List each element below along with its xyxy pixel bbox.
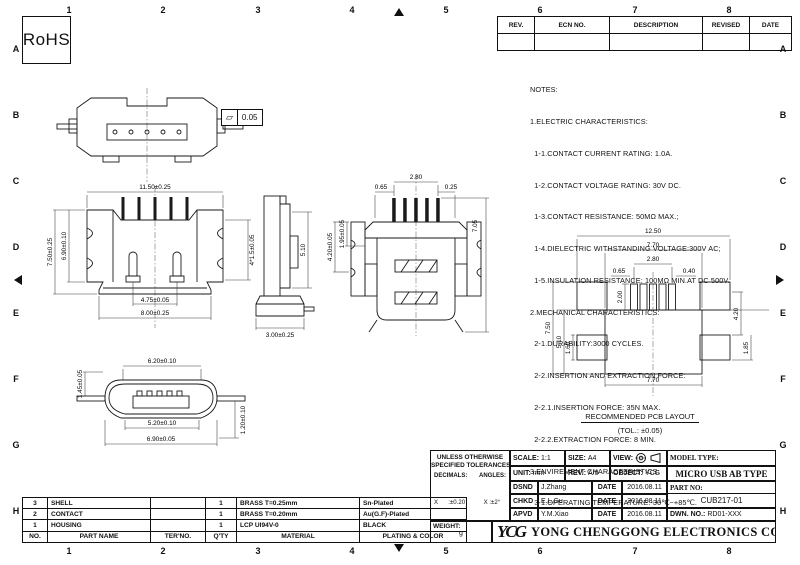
- part-name: SHELL: [48, 498, 151, 509]
- size-value: A4: [588, 455, 597, 462]
- dim-label: 1.45±0.05: [77, 369, 84, 398]
- weight-value: g: [433, 530, 489, 537]
- scale-label: SCALE:: [513, 455, 539, 462]
- apvd-name: Y.M.Xiao: [538, 508, 592, 521]
- svg-text:H: H: [780, 506, 787, 516]
- rear-view-geometry: [351, 174, 481, 336]
- svg-text:F: F: [780, 374, 786, 384]
- scale-value: 1:1: [541, 455, 551, 462]
- svg-text:6: 6: [537, 546, 542, 556]
- ecn-col-header: ECN NO.: [535, 17, 610, 34]
- svg-text:A: A: [13, 44, 20, 54]
- angle-tolerances: X :±2° X.X :±1°: [484, 480, 506, 521]
- revision-empty-row: [498, 34, 792, 51]
- part-no-value-cell: CUB217-01: [667, 494, 776, 508]
- parts-row-contact: 2 CONTACT 1 BRASS T=0.20mm Au(G.F)-Plate…: [23, 509, 467, 520]
- front-view: 11.50±0.25 7.50±0.25 6.90±0.10 4*1.5±0.0…: [45, 182, 260, 332]
- part-qty: 1: [206, 498, 237, 509]
- part-ter-no: [151, 498, 206, 509]
- dim-label: 4.20: [733, 307, 740, 320]
- parts-row-housing: 1 HOUSING 1 LCP UI94V-0 BLACK: [23, 520, 467, 531]
- front-view-dimensions: 11.50±0.25 7.50±0.25 6.90±0.10 4*1.5±0.0…: [47, 184, 256, 320]
- part-ter-no: [151, 520, 206, 531]
- front-view-geometry: [87, 186, 223, 328]
- rev-label: REV.:: [568, 470, 586, 477]
- svg-text:C: C: [780, 176, 787, 186]
- dsnd-date: 2016.08.11: [622, 481, 667, 494]
- dim-label: 2.80: [647, 256, 660, 263]
- pcb-dimensions: 12.50 7.70 2.80 0.65 0.40 2.00 7.50 5.10…: [545, 228, 753, 387]
- model-type-value-cell: MICRO USB AB TYPE: [667, 466, 776, 481]
- top-view: [55, 86, 245, 184]
- part-name: CONTACT: [48, 509, 151, 520]
- rear-view: 2.80 0.65 0.25 4.20±0.05 1.95±0.05 7.05: [325, 168, 493, 340]
- dim-label: 1.60: [565, 341, 572, 354]
- svg-text:1: 1: [66, 5, 71, 15]
- company-logo: YCG: [497, 522, 525, 542]
- part-no-value: CUB217-01: [701, 496, 743, 505]
- svg-text:2: 2: [160, 5, 165, 15]
- dim-label: 2.80: [410, 174, 423, 181]
- unit-value: mm: [533, 470, 545, 477]
- chkd-name: E.L.Gu: [538, 494, 592, 508]
- flatness-callout: ▱ 0.05: [221, 109, 263, 126]
- parts-header-ter-no: TER'NO.: [151, 531, 206, 542]
- title-block: UNLESS OTHERWISE SPECIFIED TOLERANCES DE…: [430, 450, 776, 543]
- svg-text:8: 8: [726, 546, 731, 556]
- svg-text:7: 7: [632, 5, 637, 15]
- svg-text:6: 6: [537, 5, 542, 15]
- dim-label: 1.95±0.05: [339, 219, 346, 248]
- dim-label: 11.50±0.25: [139, 184, 171, 191]
- svg-text:C: C: [13, 176, 20, 186]
- svg-text:E: E: [780, 308, 786, 318]
- chkd-date-label: DATE: [592, 494, 622, 508]
- bottom-view-geometry: [77, 380, 245, 418]
- dim-label: 2.00: [617, 290, 624, 303]
- size-cell: SIZE: A4: [565, 450, 610, 466]
- scale-cell: SCALE: 1:1: [510, 450, 565, 466]
- rev-cell: REV.: A/0: [565, 466, 610, 481]
- part-no: 1: [23, 520, 48, 531]
- svg-text:D: D: [13, 242, 20, 252]
- dim-label: 6.90±0.05: [147, 436, 176, 443]
- dwn-no-value: RD01-XXX: [707, 511, 741, 518]
- object-label: OBJECT:: [613, 470, 643, 477]
- part-material: BRASS T=0.25mm: [237, 498, 360, 509]
- svg-text:4: 4: [349, 546, 354, 556]
- unit-label: UNIT:: [513, 470, 531, 477]
- svg-text:D: D: [780, 242, 787, 252]
- parts-table: 3 SHELL 1 BRASS T=0.25mm Sn-Plated 2 CON…: [22, 497, 467, 543]
- svg-text:E: E: [13, 308, 19, 318]
- tolerance-box: UNLESS OTHERWISE SPECIFIED TOLERANCES DE…: [430, 450, 510, 521]
- parts-header-no: NO.: [23, 531, 48, 542]
- svg-text:8: 8: [726, 5, 731, 15]
- part-name: HOUSING: [48, 520, 151, 531]
- date-col-header: DATE: [750, 17, 792, 34]
- svg-text:4: 4: [349, 5, 354, 15]
- dim-label: 4.20±0.05: [327, 232, 334, 261]
- svg-text:H: H: [13, 506, 20, 516]
- dim-label: 7.50: [545, 321, 552, 334]
- object-value: YCG: [645, 470, 660, 477]
- notes-line: 1-2.CONTACT VOLTAGE RATING: 30V DC.: [530, 181, 778, 192]
- dim-label: 0.65: [375, 184, 388, 191]
- company-cell: YCG YONG CHENGGONG ELECTRONICS CO. , LTD…: [492, 521, 776, 543]
- svg-text:B: B: [13, 110, 20, 120]
- dsnd-role: DSND: [510, 481, 538, 494]
- apvd-date: 2016.08.11: [622, 508, 667, 521]
- notes-line: 2-2.2.EXTRACTION FORCE: 8 MIN.: [530, 435, 778, 446]
- weight-cell: WEIGHT: g: [430, 521, 492, 543]
- rev-col-header: REV.: [498, 17, 535, 34]
- part-qty: 1: [206, 509, 237, 520]
- pcb-layout-view: 12.50 7.70 2.80 0.65 0.40 2.00 7.50 5.10…: [545, 226, 777, 412]
- drawing-sheet: 1 2 3 4 5 6 7 8 1 2 3 4 5 6 7 8 A B C D …: [0, 0, 800, 565]
- revision-header-row: REV. ECN NO. DESCRIPTION REVISED DATE: [498, 17, 792, 34]
- notes-line: NOTES:: [530, 85, 778, 96]
- part-no-label: PART NO:: [670, 484, 703, 492]
- rev-value: A/0: [588, 470, 599, 477]
- bottom-view: 6.20±0.10 1.45±0.05 5.20±0.10 6.90±0.05 …: [73, 350, 249, 468]
- part-no: 3: [23, 498, 48, 509]
- model-type-value: MICRO USB AB TYPE: [675, 469, 767, 479]
- svg-text:5: 5: [443, 546, 448, 556]
- size-label: SIZE:: [568, 455, 586, 462]
- unit-cell: UNIT: mm: [510, 466, 565, 481]
- model-type-label: MODEL TYPE:: [670, 454, 719, 462]
- tolerance-title-line1: UNLESS OTHERWISE: [431, 454, 509, 462]
- dwn-no-label: DWN. NO.:: [670, 511, 705, 518]
- decimal-tolerances: X :±0.20 X.X :±0.15 X.XX :±0.10 X.XXX :±…: [434, 480, 484, 521]
- dim-label: 5.20±0.10: [148, 420, 177, 427]
- tolerance-title-line2: SPECIFIED TOLERANCES: [431, 462, 509, 470]
- revised-col-header: REVISED: [703, 17, 750, 34]
- pcb-caption: RECOMMENDED PCB LAYOUT (TOL.: ±0.05): [545, 412, 735, 435]
- dim-label: 7.70: [647, 377, 660, 384]
- svg-text:G: G: [12, 440, 19, 450]
- description-col-header: DESCRIPTION: [610, 17, 703, 34]
- dim-label: 8.00±0.25: [141, 310, 170, 317]
- bottom-view-dimensions: 6.20±0.10 1.45±0.05 5.20±0.10 6.90±0.05 …: [77, 358, 247, 446]
- dim-label: 7.50±0.25: [47, 237, 54, 266]
- parts-row-shell: 3 SHELL 1 BRASS T=0.25mm Sn-Plated: [23, 498, 467, 509]
- svg-text:B: B: [780, 110, 787, 120]
- part-no-label-cell: PART NO:: [667, 481, 776, 494]
- pcb-caption-title: RECOMMENDED PCB LAYOUT: [581, 412, 698, 423]
- svg-text:F: F: [13, 374, 19, 384]
- rohs-badge: RoHS: [22, 16, 71, 64]
- notes-line: 1-1.CONTACT CURRENT RATING: 1.0A.: [530, 149, 778, 160]
- part-no: 2: [23, 509, 48, 520]
- dsnd-date-label: DATE: [592, 481, 622, 494]
- model-type-label-cell: MODEL TYPE:: [667, 450, 776, 466]
- svg-text:1: 1: [66, 546, 71, 556]
- dim-label: 7.70: [647, 242, 660, 249]
- dwn-no-cell: DWN. NO.: RD01-XXX: [667, 508, 776, 521]
- dim-label: 0.65: [613, 268, 626, 275]
- dim-label: 3.00±0.25: [266, 332, 295, 339]
- svg-text:7: 7: [632, 546, 637, 556]
- dim-label: 5.10: [556, 335, 563, 348]
- svg-text:2: 2: [160, 546, 165, 556]
- angles-label: ANGLES:: [479, 473, 506, 479]
- top-view-geometry: [57, 88, 243, 182]
- apvd-role: APVD: [510, 508, 538, 521]
- parts-header-row: NO. PART NAME TER'NO. Q'TY MATERIAL PLAT…: [23, 531, 467, 542]
- view-label: VIEW:: [613, 455, 633, 462]
- side-view: 5.10 3.00±0.25: [250, 188, 322, 340]
- svg-text:G: G: [779, 440, 786, 450]
- decimals-label: DECIMALS:: [434, 473, 467, 479]
- part-qty: 1: [206, 520, 237, 531]
- third-angle-projection-icon: [635, 452, 661, 464]
- notes-line: 1-3.CONTACT RESISTANCE: 50MΩ MAX.;: [530, 212, 778, 223]
- dim-label: 7.05: [472, 219, 479, 232]
- dim-label: 0.40: [683, 268, 696, 275]
- apvd-date-label: DATE: [592, 508, 622, 521]
- dim-label: 5.10: [300, 243, 307, 256]
- parts-header-qty: Q'TY: [206, 531, 237, 542]
- company-name: YONG CHENGGONG ELECTRONICS CO. , LTD.: [531, 525, 776, 540]
- object-cell: OBJECT: YCG: [610, 466, 667, 481]
- dim-label: 4.75±0.05: [141, 297, 170, 304]
- flatness-value: 0.05: [238, 110, 262, 125]
- part-ter-no: [151, 509, 206, 520]
- dim-label: 0.25: [445, 184, 458, 191]
- dim-label: 1.20±0.10: [240, 405, 247, 434]
- dim-label: 1.85: [743, 341, 750, 354]
- weight-label: WEIGHT:: [433, 523, 489, 530]
- revision-table: REV. ECN NO. DESCRIPTION REVISED DATE: [497, 16, 792, 51]
- dim-label: 12.50: [645, 228, 661, 235]
- chkd-date: 2016.08.11: [622, 494, 667, 508]
- dim-label: 6.90±0.10: [61, 231, 68, 260]
- pcb-caption-tolerance: (TOL.: ±0.05): [545, 426, 735, 435]
- view-cell: VIEW:: [610, 450, 667, 466]
- parallelism-icon: ▱: [222, 110, 238, 125]
- parts-header-material: MATERIAL: [237, 531, 360, 542]
- dim-label: 6.20±0.10: [148, 358, 177, 365]
- parts-header-name: PART NAME: [48, 531, 151, 542]
- part-material: LCP UI94V-0: [237, 520, 360, 531]
- svg-text:3: 3: [255, 5, 260, 15]
- dsnd-name: J.Zhang: [538, 481, 592, 494]
- chkd-role: CHKD: [510, 494, 538, 508]
- svg-text:5: 5: [443, 5, 448, 15]
- svg-text:3: 3: [255, 546, 260, 556]
- notes-line: 1.ELECTRIC CHARACTERISTICS:: [530, 117, 778, 128]
- part-material: BRASS T=0.20mm: [237, 509, 360, 520]
- pcb-geometry: [557, 272, 769, 396]
